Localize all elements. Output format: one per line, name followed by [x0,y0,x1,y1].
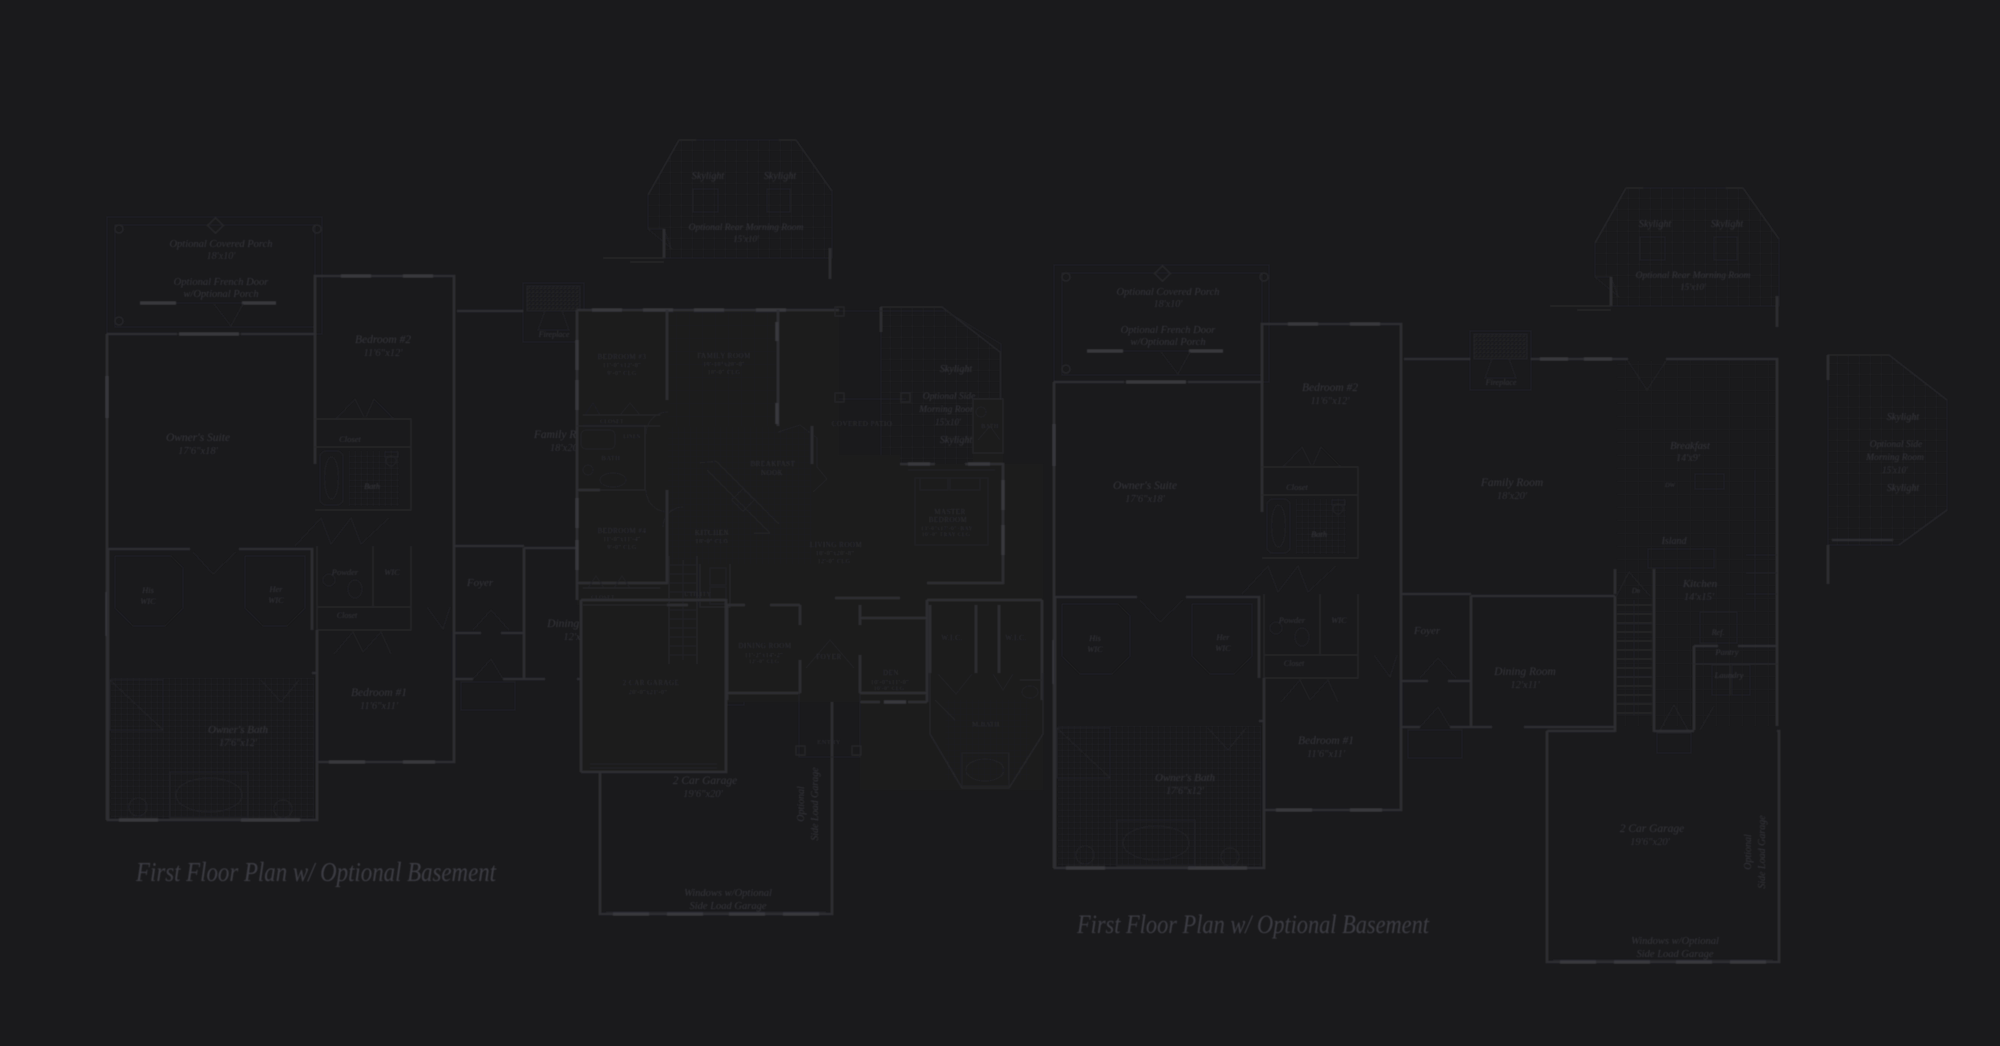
svg-text:18'-0"x20'-8": 18'-0"x20'-8" [816,551,855,557]
svg-text:W.I.C.: W.I.C. [1005,634,1026,642]
svg-text:MASTER: MASTER [934,508,965,516]
svg-text:BEDROOM #3: BEDROOM #3 [598,353,647,361]
svg-text:DINING ROOM: DINING ROOM [738,642,791,650]
svg-text:COVERED PATIO: COVERED PATIO [832,420,893,428]
svg-text:NOOK: NOOK [761,469,783,477]
svg-text:10'-0" TRAY CLG: 10'-0" TRAY CLG [922,532,971,538]
svg-text:10'-0" CLG: 10'-0" CLG [874,686,905,692]
svg-text:11'-0"x12'-8": 11'-0"x12'-8" [603,363,641,369]
svg-text:12'-0" CLG: 12'-0" CLG [817,559,850,565]
svg-text:First Floor Plan w/ Optional: First Floor Plan w/ Optional Basement [1076,910,1430,939]
svg-text:First Floor Plan w/ Optional: First Floor Plan w/ Optional Basement [135,857,497,887]
svg-text:BATH: BATH [981,424,999,430]
svg-text:BREAKFAST: BREAKFAST [751,460,796,468]
svg-text:BATH: BATH [602,455,621,462]
svg-text:BEDROOM #4: BEDROOM #4 [598,527,647,535]
svg-text:2 CAR GARAGE: 2 CAR GARAGE [623,679,680,687]
svg-text:KITCHEN: KITCHEN [695,529,729,537]
svg-text:9'-0" CLG: 9'-0" CLG [607,545,637,551]
svg-text:19'-10"x20'-0": 19'-10"x20'-0" [703,362,745,368]
svg-text:ENTRY: ENTRY [817,739,841,746]
svg-text:FOYER: FOYER [816,653,841,661]
svg-text:BEDROOM: BEDROOM [929,516,968,524]
svg-text:DEN: DEN [883,669,899,677]
svg-text:W.I.C.: W.I.C. [941,634,962,642]
svg-text:FAMILY ROOM: FAMILY ROOM [697,352,751,360]
svg-text:10'-0" CLG: 10'-0" CLG [707,370,740,376]
svg-text:CLOSET: CLOSET [600,419,624,425]
svg-text:UTILITY: UTILITY [684,592,711,598]
svg-text:10'-0" CLG: 10'-0" CLG [695,539,728,545]
svg-text:11'-0"x11'-4": 11'-0"x11'-4" [603,537,641,543]
svg-text:M.BATH: M.BATH [972,721,999,728]
svg-text:9'-0" CLG: 9'-0" CLG [607,371,637,377]
svg-text:LIVING ROOM: LIVING ROOM [810,541,863,549]
svg-text:20'-0"x21'-0": 20'-0"x21'-0" [629,690,668,696]
svg-text:LINEN: LINEN [623,435,641,440]
svg-text:12'-0" CLG: 12'-0" CLG [749,659,780,665]
